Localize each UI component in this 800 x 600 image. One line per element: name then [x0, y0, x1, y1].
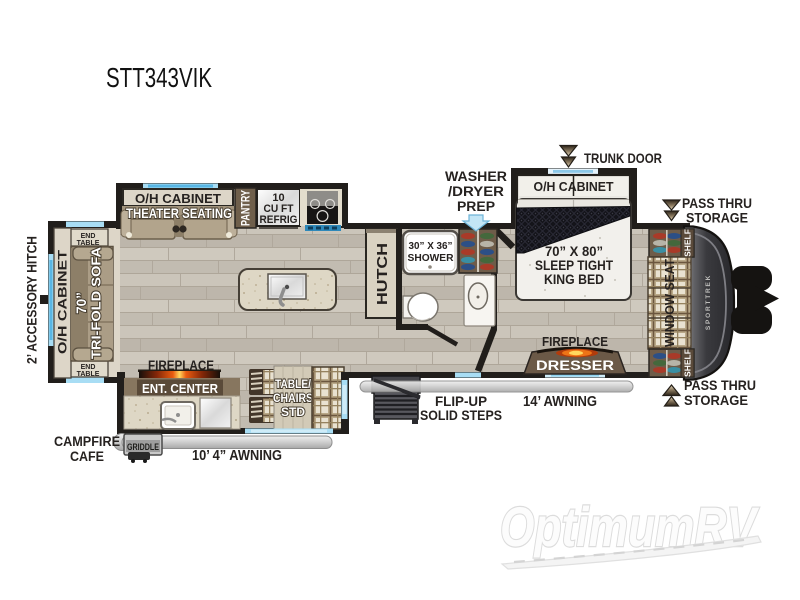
svg-text:2’ ACCESSORY HITCH: 2’ ACCESSORY HITCH [25, 236, 40, 364]
svg-text:SOLID STEPS: SOLID STEPS [420, 407, 502, 423]
svg-text:SHOWER: SHOWER [408, 252, 454, 264]
svg-text:ENT. CENTER: ENT. CENTER [142, 381, 219, 396]
svg-text:SHELF: SHELF [683, 229, 693, 257]
svg-text:END: END [81, 233, 96, 240]
svg-text:WASHER: WASHER [445, 169, 507, 184]
svg-text:CHAIRS: CHAIRS [273, 391, 313, 405]
svg-text:TRUNK DOOR: TRUNK DOOR [584, 150, 662, 166]
svg-text:HUTCH: HUTCH [374, 243, 391, 305]
svg-text:14’ AWNING: 14’ AWNING [523, 394, 597, 410]
svg-text:END: END [81, 364, 96, 371]
svg-text:STORAGE: STORAGE [686, 210, 748, 226]
svg-text:SHELF: SHELF [683, 349, 693, 377]
svg-text:KING BED: KING BED [544, 272, 604, 287]
svg-text:STD: STD [281, 405, 305, 419]
svg-text:TRI-FOLD SOFA: TRI-FOLD SOFA [90, 247, 104, 359]
svg-text:10’ 4” AWNING: 10’ 4” AWNING [192, 448, 282, 464]
svg-text:PREP: PREP [457, 199, 495, 214]
svg-text:REFRIG: REFRIG [260, 214, 298, 226]
svg-text:TABLE: TABLE [77, 371, 100, 378]
svg-text:/DRYER: /DRYER [448, 184, 504, 199]
svg-text:O/H CABINET: O/H CABINET [56, 249, 70, 354]
svg-text:THEATER SEATING: THEATER SEATING [126, 205, 232, 221]
svg-text:PANTRY: PANTRY [241, 190, 253, 226]
svg-text:PASS THRU: PASS THRU [684, 377, 756, 393]
svg-text:STORAGE: STORAGE [684, 392, 748, 408]
svg-text:WINDOW SEAT: WINDOW SEAT [663, 259, 677, 347]
svg-text:GRIDDLE: GRIDDLE [127, 442, 159, 453]
svg-text:CAFE: CAFE [70, 449, 104, 464]
svg-text:30” X 36”: 30” X 36” [409, 240, 453, 252]
svg-text:SPORTTREK: SPORTTREK [705, 274, 712, 330]
svg-text:O/H CABINET: O/H CABINET [135, 191, 221, 206]
svg-text:O/H CABINET: O/H CABINET [534, 179, 614, 194]
svg-text:TABLE/: TABLE/ [275, 377, 312, 391]
svg-text:70”: 70” [74, 292, 89, 314]
svg-text:DRESSER: DRESSER [536, 358, 614, 373]
svg-text:SLEEP TIGHT: SLEEP TIGHT [535, 258, 614, 273]
svg-text:70” X 80”: 70” X 80” [545, 244, 603, 259]
svg-text:CAMPFIRE: CAMPFIRE [54, 434, 120, 449]
svg-text:STT343VIK: STT343VIK [106, 62, 212, 93]
